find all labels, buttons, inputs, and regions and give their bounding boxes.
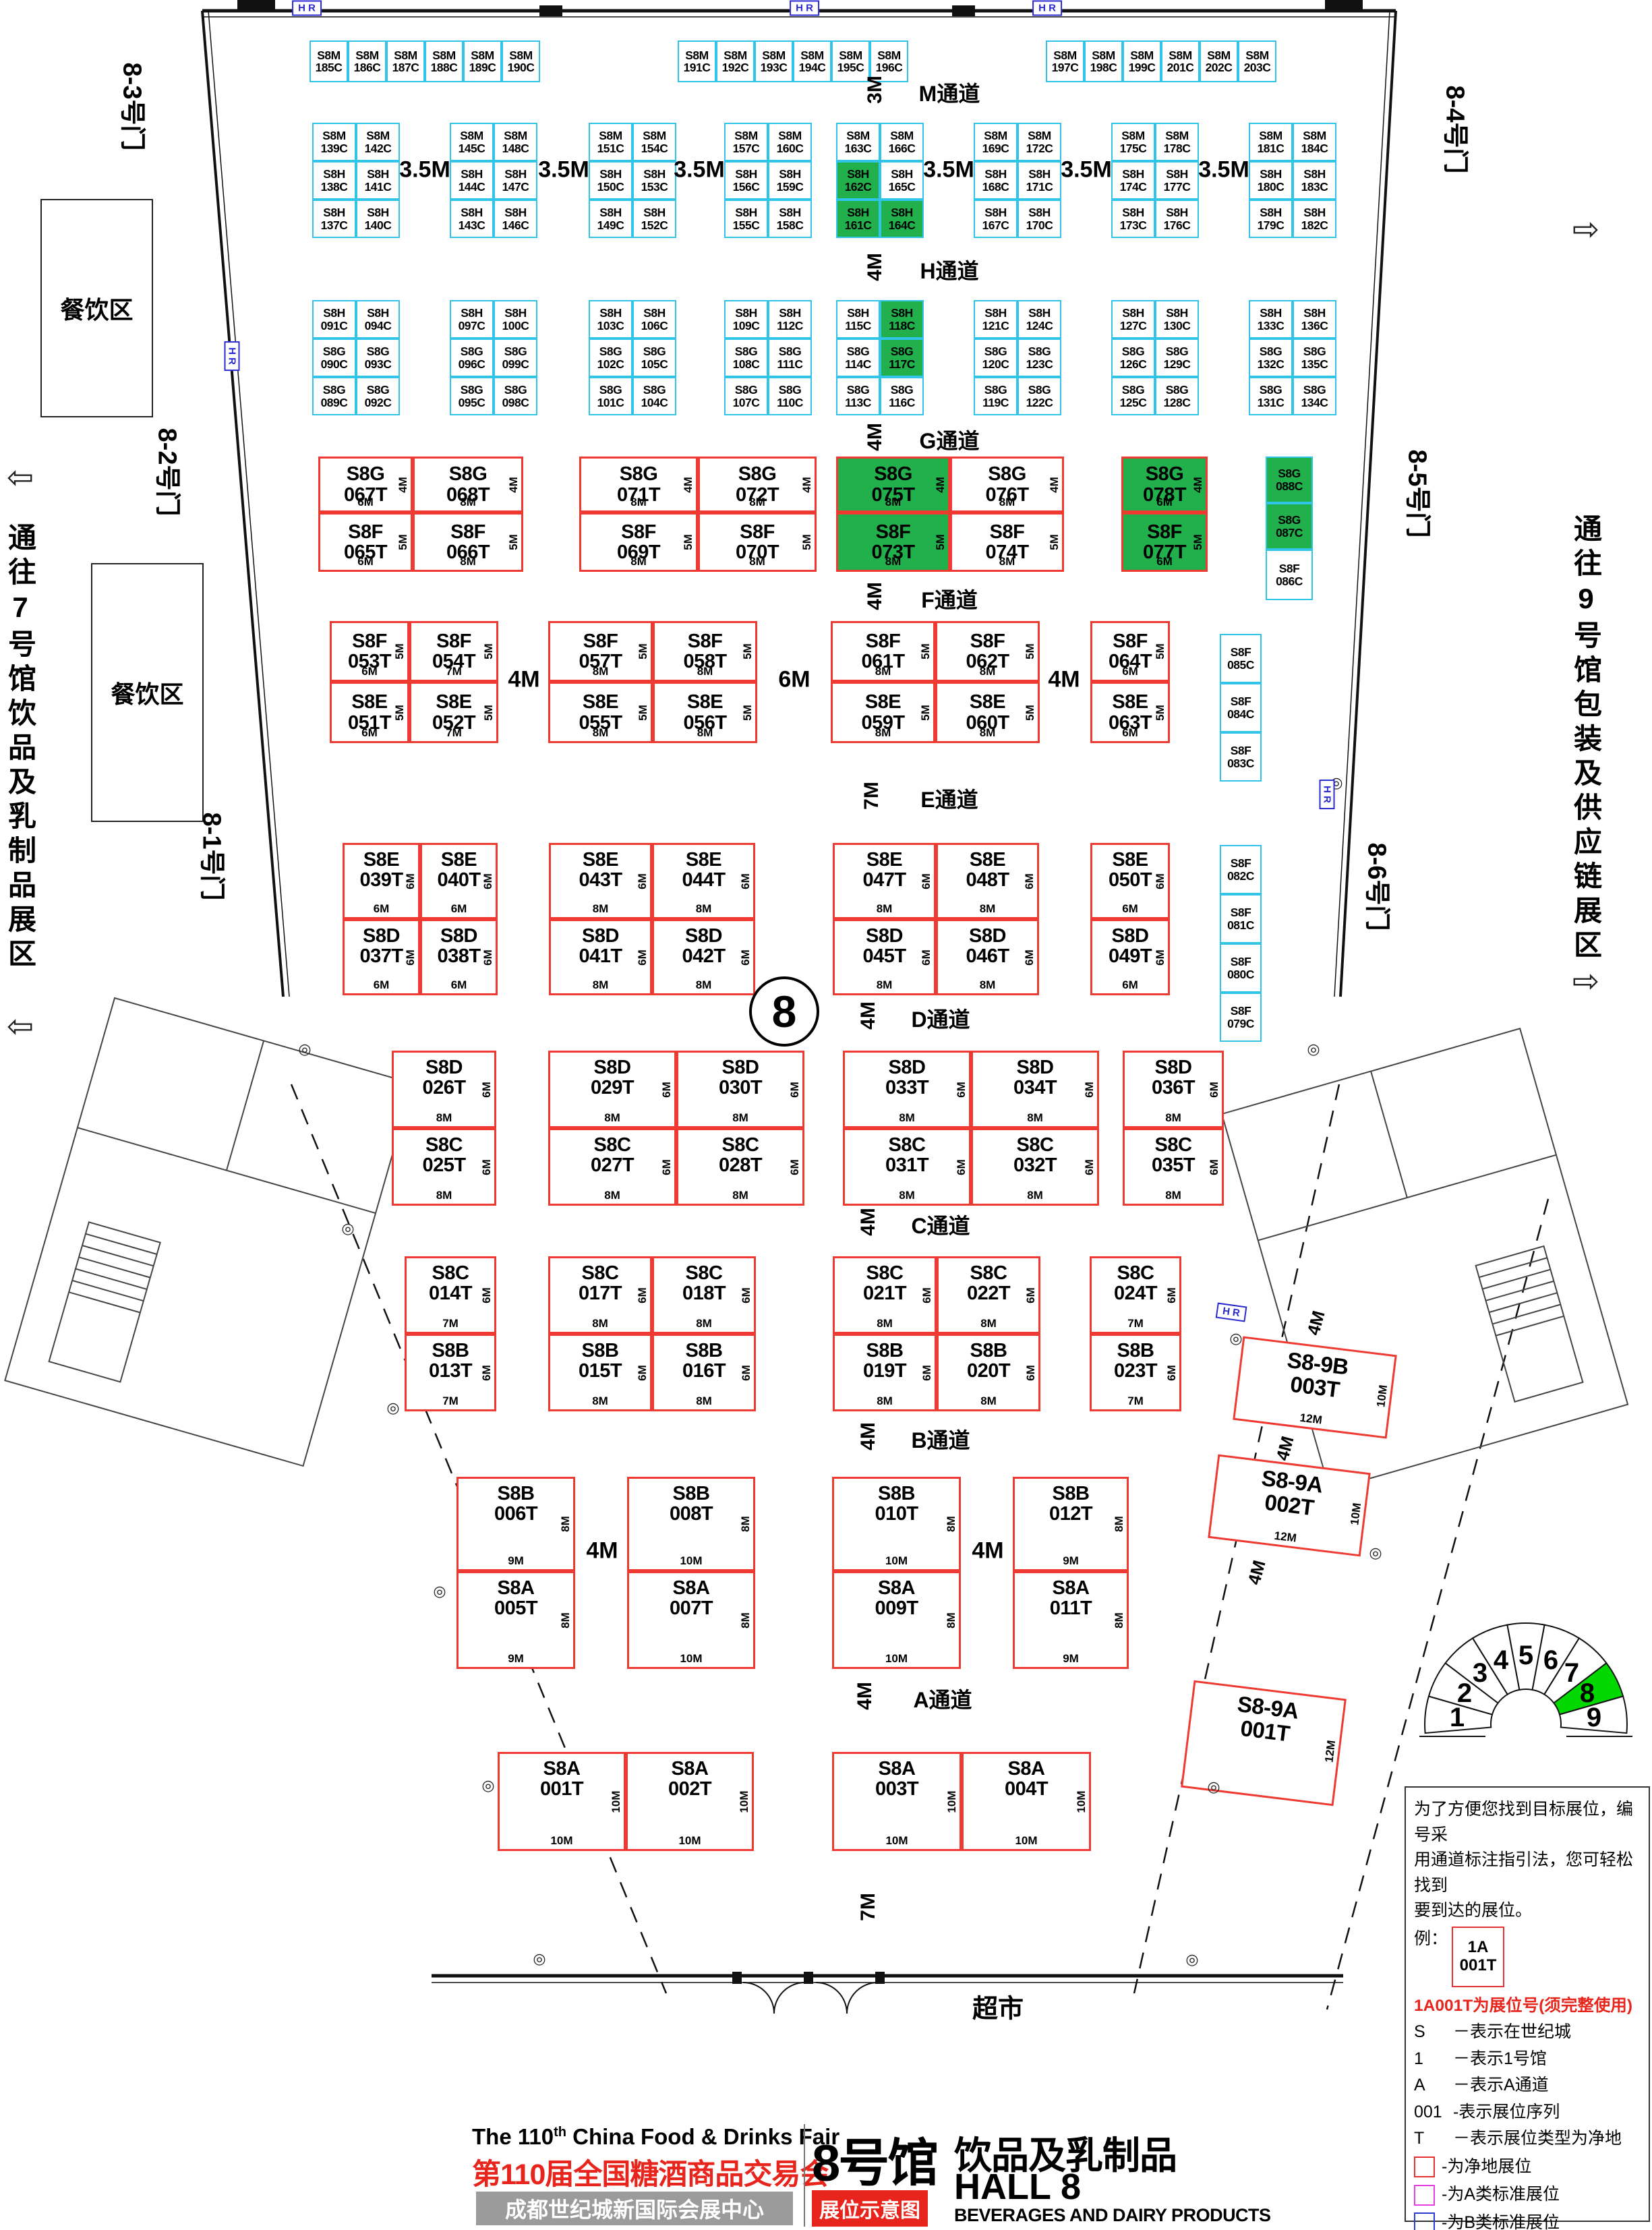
booth-S8F-062T: S8F062T8M5M — [935, 621, 1040, 682]
booth-S8-9A-001T: S8-9A001T12M — [1181, 1680, 1347, 1807]
label-4M: 4M — [857, 1001, 880, 1030]
booth-S8G-134C: S8G134C — [1293, 377, 1336, 415]
booth-S8H-149C: S8H149C — [589, 200, 632, 238]
booth-S8G-119C: S8G119C — [974, 377, 1017, 415]
booth-S8G-101C: S8G101C — [589, 377, 632, 415]
label-4M: 4M — [864, 423, 887, 451]
floor-plan-page: 餐饮区 餐饮区 S8M185CS8M186CS8M187CS8M188CS8M1… — [0, 0, 1652, 2230]
booth-S8M-191C: S8M191C — [678, 40, 716, 82]
swatch-icon — [1414, 2156, 1435, 2177]
label-7M: 7M — [857, 1893, 880, 1921]
booth-S8B-012T: S8B012T9M8M — [1013, 1477, 1129, 1571]
booth-S8F-065T: S8F065T6M5M — [318, 512, 413, 572]
booth-S8H-182C: S8H182C — [1293, 200, 1336, 238]
booth-S8G-078T: S8G078T6M4M — [1121, 457, 1208, 512]
booth-S8G-067T: S8G067T6M4M — [318, 457, 413, 512]
minimap-hall-9: 9 — [1587, 1703, 1601, 1732]
booth-S8E-051T: S8E051T6M5M — [330, 682, 409, 743]
label-M通道: M通道 — [919, 77, 980, 108]
booth-S8F-085C: S8F085C — [1220, 634, 1262, 683]
column-icon: ◎ — [386, 1399, 399, 1417]
booth-S8G-117C: S8G117C — [880, 339, 924, 377]
minimap-hall-6: 6 — [1543, 1645, 1558, 1675]
booth-S8M-186C: S8M186C — [348, 40, 386, 82]
column-icon: ◎ — [1307, 1040, 1320, 1058]
label-C通道: C通道 — [911, 1209, 970, 1240]
label-通往7号馆饮品及乳制品展区: 通往7号馆饮品及乳制品展区 — [0, 523, 41, 973]
label-H通道: H通道 — [920, 254, 978, 285]
booth-S8E-056T: S8E056T8M5M — [653, 682, 757, 743]
booth-S8M-151C: S8M151C — [589, 123, 632, 161]
fire-hydrant-icon: H R — [292, 1, 322, 16]
booth-S8G-131C: S8G131C — [1249, 377, 1293, 415]
label-⇦: ⇦ — [7, 1007, 34, 1045]
booth-S8C-014T: S8C014T7M6M — [405, 1256, 496, 1334]
column-icon: ◎ — [341, 1220, 354, 1237]
booth-S8M-142C: S8M142C — [356, 123, 400, 161]
booth-S8G-096C: S8G096C — [450, 339, 494, 377]
booth-S8F-082C: S8F082C — [1220, 845, 1262, 894]
column-icon: ◎ — [1207, 1778, 1220, 1796]
booth-S8G-102C: S8G102C — [589, 339, 632, 377]
booth-S8F-070T: S8F070T8M5M — [698, 512, 817, 572]
label-4M: 4M — [854, 1682, 877, 1710]
booth-S8B-013T: S8B013T7M6M — [405, 1334, 496, 1411]
booth-S8H-112C: S8H112C — [768, 300, 812, 339]
booth-S8M-185C: S8M185C — [309, 40, 348, 82]
legend-example-label: 例： — [1414, 1927, 1448, 1952]
booth-S8H-171C: S8H171C — [1017, 161, 1061, 200]
booth-S8D-034T: S8D034T8M6M — [971, 1051, 1099, 1128]
label-E通道: E通道 — [920, 783, 978, 814]
booth-S8M-189C: S8M189C — [463, 40, 502, 82]
booth-S8H-177C: S8H177C — [1155, 161, 1199, 200]
booth-S8G-088C: S8G088C — [1266, 457, 1313, 503]
swatch-icon — [1414, 2212, 1435, 2230]
booth-S8E-039T: S8E039T6M6M — [343, 843, 420, 919]
booth-S8G-126C: S8G126C — [1111, 339, 1155, 377]
booth-S8H-091C: S8H091C — [312, 300, 356, 339]
column-icon: ◎ — [481, 1777, 494, 1794]
booth-S8M-175C: S8M175C — [1111, 123, 1155, 161]
column-icon: ◎ — [298, 1040, 311, 1058]
booth-S8G-135C: S8G135C — [1293, 339, 1336, 377]
label-3.5M: 3.5M — [399, 157, 450, 183]
minimap-hall-4: 4 — [1494, 1645, 1509, 1675]
booth-S8H-156C: S8H156C — [724, 161, 768, 200]
booth-S8G-071T: S8G071T8M4M — [579, 457, 698, 512]
legend-swatch-row: -为B类标准展位 — [1414, 2210, 1643, 2230]
booth-S8F-058T: S8F058T8M5M — [653, 621, 757, 682]
booth-S8G-089C: S8G089C — [312, 377, 356, 415]
booth-S8M-160C: S8M160C — [768, 123, 812, 161]
booth-S8E-047T: S8E047T8M6M — [833, 843, 936, 919]
label-8-5号门: 8-5号门 — [1402, 450, 1439, 538]
booth-S8H-103C: S8H103C — [589, 300, 632, 339]
booth-S8H-161C: S8H161C — [836, 200, 880, 238]
booth-S8G-105C: S8G105C — [632, 339, 676, 377]
booth-S8M-154C: S8M154C — [632, 123, 676, 161]
label-6M: 6M — [778, 667, 810, 693]
booth-S8H-179C: S8H179C — [1249, 200, 1293, 238]
booth-S8M-188C: S8M188C — [425, 40, 463, 82]
legend-swatches: -为净地展位-为A类标准展位-为B类标准展位-为C类标准展位-为D类标准展位 — [1414, 2154, 1643, 2230]
booth-S8C-032T: S8C032T8M6M — [971, 1128, 1099, 1206]
category-en: BEVERAGES AND DAIRY PRODUCTS — [954, 2205, 1271, 2226]
booth-S8C-017T: S8C017T8M6M — [548, 1256, 652, 1334]
booth-S8G-093C: S8G093C — [356, 339, 400, 377]
booth-S8M-193C: S8M193C — [755, 40, 793, 82]
booth-S8H-152C: S8H152C — [632, 200, 676, 238]
label-通往9号馆包装及供应链展区: 通往9号馆包装及供应链展区 — [1566, 514, 1607, 964]
booth-S8H-159C: S8H159C — [768, 161, 812, 200]
label-G通道: G通道 — [920, 424, 980, 455]
booth-S8B-020T: S8B020T8M6M — [937, 1334, 1040, 1411]
booth-S8G-125C: S8G125C — [1111, 377, 1155, 415]
booth-S8D-037T: S8D037T6M6M — [343, 919, 420, 995]
booth-S8A-007T: S8A007T10M8M — [627, 1571, 755, 1669]
booth-S8H-127C: S8H127C — [1111, 300, 1155, 339]
dining-area-label: 餐饮区 — [60, 291, 133, 326]
booth-S8H-183C: S8H183C — [1293, 161, 1336, 200]
booth-S8M-178C: S8M178C — [1155, 123, 1199, 161]
map-type-label: 展位示意图 — [812, 2190, 928, 2227]
booth-S8H-100C: S8H100C — [494, 300, 537, 339]
booth-S8A-004T: S8A004T10M10M — [962, 1752, 1091, 1851]
booth-S8A-005T: S8A005T9M8M — [456, 1571, 575, 1669]
fire-hydrant-icon: H R — [790, 1, 819, 16]
booth-S8D-045T: S8D045T8M6M — [833, 919, 936, 995]
booth-S8F-084C: S8F084C — [1220, 683, 1262, 732]
booth-S8D-030T: S8D030T8M6M — [676, 1051, 804, 1128]
booth-S8G-123C: S8G123C — [1017, 339, 1061, 377]
booth-S8B-015T: S8B015T8M6M — [548, 1334, 652, 1411]
booth-S8G-099C: S8G099C — [494, 339, 537, 377]
booth-S8D-046T: S8D046T8M6M — [936, 919, 1039, 995]
fire-hydrant-icon: H R — [225, 341, 240, 371]
booth-S8H-165C: S8H165C — [880, 161, 924, 200]
booth-S8F-057T: S8F057T8M5M — [548, 621, 653, 682]
swatch-icon — [1414, 2185, 1435, 2206]
fire-hydrant-icon: H R — [1320, 780, 1335, 809]
booth-S8H-164C: S8H164C — [880, 200, 924, 238]
booth-S8H-180C: S8H180C — [1249, 161, 1293, 200]
dining-area-label: 餐饮区 — [111, 675, 183, 710]
booth-S8M-148C: S8M148C — [494, 123, 537, 161]
label-3.5M: 3.5M — [674, 157, 725, 183]
booth-S8H-176C: S8H176C — [1155, 200, 1199, 238]
label-超市: 超市 — [972, 1988, 1024, 2025]
venue-name: 成都世纪城新国际会展中心 — [476, 2192, 793, 2225]
booth-S8G-068T: S8G068T8M4M — [413, 457, 523, 512]
booth-S8D-026T: S8D026T8M6M — [392, 1051, 496, 1128]
booth-S8H-106C: S8H106C — [632, 300, 676, 339]
booth-S8G-072T: S8G072T8M4M — [698, 457, 817, 512]
legend-example-booth: 1A 001T — [1452, 1927, 1504, 1987]
booth-S8D-033T: S8D033T8M6M — [843, 1051, 971, 1128]
halls-minimap: 1 2 3 4 5 6 7 8 9 — [1406, 1613, 1652, 1768]
booth-S8H-121C: S8H121C — [974, 300, 1017, 339]
label-3.5M: 3.5M — [1198, 157, 1249, 183]
booth-S8M-199C: S8M199C — [1123, 40, 1161, 82]
booth-S8E-043T: S8E043T8M6M — [549, 843, 652, 919]
booth-S8M-197C: S8M197C — [1046, 40, 1084, 82]
booth-S8M-169C: S8M169C — [974, 123, 1017, 161]
label-8-6号门: 8-6号门 — [1361, 843, 1398, 931]
booth-S8H-153C: S8H153C — [632, 161, 676, 200]
booth-S8E-055T: S8E055T8M5M — [548, 682, 653, 743]
booth-S8H-170C: S8H170C — [1017, 200, 1061, 238]
label-4M: 4M — [508, 667, 539, 693]
booth-S8G-095C: S8G095C — [450, 377, 494, 415]
label-3.5M: 3.5M — [1061, 157, 1112, 183]
booth-S8H-167C: S8H167C — [974, 200, 1017, 238]
booth-S8H-140C: S8H140C — [356, 200, 400, 238]
label-F通道: F通道 — [921, 583, 978, 614]
booth-S8H-155C: S8H155C — [724, 200, 768, 238]
booth-S8F-083C: S8F083C — [1220, 732, 1262, 782]
legend-intro-line: 为了方便您找到目标展位，编号采 — [1414, 1797, 1643, 1848]
label-4M: 4M — [864, 582, 887, 610]
swatch-label: -为净地展位 — [1442, 2154, 1531, 2180]
booth-S8C-028T: S8C028T8M6M — [676, 1128, 804, 1206]
booth-S8F-074T: S8F074T8M5M — [950, 512, 1064, 572]
booth-S8M-139C: S8M139C — [312, 123, 356, 161]
title-divider — [804, 2124, 805, 2227]
booth-S8B-023T: S8B023T7M6M — [1090, 1334, 1181, 1411]
booth-S8H-173C: S8H173C — [1111, 200, 1155, 238]
booth-S8H-158C: S8H158C — [768, 200, 812, 238]
minimap-hall-5: 5 — [1518, 1641, 1533, 1670]
legend-swatch-row: -为净地展位 — [1414, 2154, 1643, 2180]
booth-S8A-002T: S8A002T10M10M — [626, 1752, 754, 1851]
booth-S8H-136C: S8H136C — [1293, 300, 1336, 339]
booth-S8M-166C: S8M166C — [880, 123, 924, 161]
booth-S8F-066T: S8F066T8M5M — [413, 512, 523, 572]
booth-S8E-059T: S8E059T8M5M — [831, 682, 935, 743]
booth-S8F-064T: S8F064T6M5M — [1090, 621, 1170, 682]
booth-S8H-168C: S8H168C — [974, 161, 1017, 200]
minimap-hall-2: 2 — [1457, 1678, 1472, 1708]
booth-S8F-080C: S8F080C — [1220, 943, 1262, 993]
booth-S8A-001T: S8A001T10M10M — [498, 1752, 626, 1851]
booth-S8G-113C: S8G113C — [836, 377, 880, 415]
booth-S8B-008T: S8B008T10M8M — [627, 1477, 755, 1571]
booth-S8H-174C: S8H174C — [1111, 161, 1155, 200]
booth-S8F-073T: S8F073T8M5M — [836, 512, 950, 572]
booth-S8H-162C: S8H162C — [836, 161, 880, 200]
label-⇨: ⇨ — [1572, 210, 1599, 248]
column-icon: ◎ — [433, 1583, 446, 1600]
booth-S8H-109C: S8H109C — [724, 300, 768, 339]
booth-S8B-006T: S8B006T9M8M — [456, 1477, 575, 1571]
booth-S8H-150C: S8H150C — [589, 161, 632, 200]
booth-S8M-181C: S8M181C — [1249, 123, 1293, 161]
booth-S8H-124C: S8H124C — [1017, 300, 1061, 339]
booth-S8H-137C: S8H137C — [312, 200, 356, 238]
booth-S8D-041T: S8D041T8M6M — [549, 919, 652, 995]
column-icon: ◎ — [1369, 1544, 1382, 1562]
booth-S8H-144C: S8H144C — [450, 161, 494, 200]
booth-S8M-145C: S8M145C — [450, 123, 494, 161]
booth-S8C-022T: S8C022T8M6M — [937, 1256, 1040, 1334]
label-4M: 4M — [972, 1538, 1003, 1564]
booth-S8D-049T: S8D049T6M6M — [1090, 919, 1170, 995]
booth-S8H-141C: S8H141C — [356, 161, 400, 200]
booth-S8G-076T: S8G076T8M4M — [950, 457, 1064, 512]
booth-S8C-027T: S8C027T8M6M — [548, 1128, 676, 1206]
swatch-label: -为A类标准展位 — [1442, 2182, 1560, 2208]
booth-S8E-044T: S8E044T8M6M — [652, 843, 755, 919]
booth-S8A-011T: S8A011T9M8M — [1013, 1571, 1129, 1669]
booth-S8G-110C: S8G110C — [768, 377, 812, 415]
fair-title-cn: 第110届全国糖酒商品交易会 — [472, 2151, 796, 2193]
label-D通道: D通道 — [911, 1003, 970, 1034]
booth-S8F-054T: S8F054T7M5M — [409, 621, 498, 682]
booth-S8H-147C: S8H147C — [494, 161, 537, 200]
booth-S8M-163C: S8M163C — [836, 123, 880, 161]
legend-intro-line: 用通道标注指引法，您可轻松找到 — [1414, 1848, 1643, 1898]
column-icon: ◎ — [1229, 1330, 1242, 1347]
booth-S8H-097C: S8H097C — [450, 300, 494, 339]
column-icon: ◎ — [1185, 1951, 1198, 1968]
booth-S8C-025T: S8C025T8M6M — [392, 1128, 496, 1206]
booth-S8E-052T: S8E052T7M5M — [409, 682, 498, 743]
label-3M: 3M — [864, 76, 887, 104]
booth-S8M-192C: S8M192C — [716, 40, 755, 82]
legend-example-note: 1A001T为展位号(须完整使用) — [1414, 1994, 1643, 2019]
booth-S8G-120C: S8G120C — [974, 339, 1017, 377]
booth-S8H-133C: S8H133C — [1249, 300, 1293, 339]
label-⇦: ⇦ — [7, 459, 34, 496]
booth-S8M-203C: S8M203C — [1238, 40, 1276, 82]
booth-S8G-132C: S8G132C — [1249, 339, 1293, 377]
booth-S8E-060T: S8E060T8M5M — [935, 682, 1040, 743]
booth-S8E-040T: S8E040T6M6M — [420, 843, 498, 919]
swatch-label: -为B类标准展位 — [1442, 2210, 1560, 2230]
booth-S8H-115C: S8H115C — [836, 300, 880, 339]
label-8-4号门: 8-4号门 — [1440, 86, 1477, 174]
label-8-2号门: 8-2号门 — [152, 428, 189, 517]
legend-box: 为了方便您找到目标展位，编号采 用通道标注指引法，您可轻松找到 要到达的展位。 … — [1405, 1786, 1650, 2222]
booth-S8M-198C: S8M198C — [1084, 40, 1123, 82]
booth-S8M-187C: S8M187C — [386, 40, 425, 82]
dining-area-2: 餐饮区 — [91, 563, 204, 822]
booth-S8D-036T: S8D036T8M6M — [1123, 1051, 1224, 1128]
label-⇨: ⇨ — [1572, 962, 1599, 1000]
label-4M: 4M — [857, 1422, 880, 1450]
booth-S8M-201C: S8M201C — [1161, 40, 1200, 82]
booth-S8C-024T: S8C024T7M6M — [1090, 1256, 1181, 1334]
fire-hydrant-icon: H R — [1032, 1, 1062, 16]
booth-S8G-075T: S8G075T8M4M — [836, 457, 950, 512]
booth-S8M-184C: S8M184C — [1293, 123, 1336, 161]
booth-S8C-018T: S8C018T8M6M — [652, 1256, 756, 1334]
booth-S8M-157C: S8M157C — [724, 123, 768, 161]
hall-name-en: HALL 8 — [954, 2166, 1081, 2208]
fair-title-en: The 110th China Food & Drinks Fair — [472, 2124, 796, 2150]
booth-S8G-108C: S8G108C — [724, 339, 768, 377]
booth-S8B-010T: S8B010T10M8M — [832, 1477, 961, 1571]
booth-S8F-061T: S8F061T8M5M — [831, 621, 935, 682]
dining-area-1: 餐饮区 — [40, 199, 153, 417]
booth-S8C-021T: S8C021T8M6M — [833, 1256, 937, 1334]
booth-S8M-194C: S8M194C — [793, 40, 831, 82]
booth-S8F-069T: S8F069T8M5M — [579, 512, 698, 572]
booth-S8M-172C: S8M172C — [1017, 123, 1061, 161]
booth-S8G-122C: S8G122C — [1017, 377, 1061, 415]
booth-S8H-094C: S8H094C — [356, 300, 400, 339]
label-4M: 4M — [586, 1538, 618, 1564]
label-8-1号门: 8-1号门 — [196, 813, 233, 901]
booth-S8D-029T: S8D029T8M6M — [548, 1051, 676, 1128]
hall-number-badge: 8 — [749, 976, 819, 1047]
booth-S8G-098C: S8G098C — [494, 377, 537, 415]
booth-S8G-129C: S8G129C — [1155, 339, 1199, 377]
booth-S8C-035T: S8C035T8M6M — [1123, 1128, 1224, 1206]
minimap-hall-3: 3 — [1473, 1658, 1487, 1688]
legend-swatch-row: -为A类标准展位 — [1414, 2182, 1643, 2208]
booth-S8G-090C: S8G090C — [312, 339, 356, 377]
booth-S8H-138C: S8H138C — [312, 161, 356, 200]
booth-S8A-003T: S8A003T10M10M — [832, 1752, 962, 1851]
label-B通道: B通道 — [911, 1424, 970, 1455]
booth-S8F-086C: S8F086C — [1266, 550, 1313, 600]
column-icon: ◎ — [533, 1950, 545, 1968]
booth-S8G-116C: S8G116C — [880, 377, 924, 415]
booth-S8F-077T: S8F077T6M5M — [1121, 512, 1208, 572]
booth-S8D-038T: S8D038T6M6M — [420, 919, 498, 995]
booth-S8G-092C: S8G092C — [356, 377, 400, 415]
booth-S8G-128C: S8G128C — [1155, 377, 1199, 415]
label-4M: 4M — [1048, 667, 1080, 693]
booth-S8D-042T: S8D042T8M6M — [652, 919, 755, 995]
hall-name-cn: 8号馆 — [812, 2121, 937, 2196]
booth-S8G-114C: S8G114C — [836, 339, 880, 377]
booth-S8B-016T: S8B016T8M6M — [652, 1334, 756, 1411]
booth-S8G-111C: S8G111C — [768, 339, 812, 377]
booth-S8C-031T: S8C031T8M6M — [843, 1128, 971, 1206]
booth-S8E-050T: S8E050T6M6M — [1090, 843, 1170, 919]
booth-S8E-048T: S8E048T8M6M — [936, 843, 1039, 919]
label-4M: 4M — [864, 253, 887, 281]
booth-S8H-146C: S8H146C — [494, 200, 537, 238]
booth-S8G-104C: S8G104C — [632, 377, 676, 415]
label-3.5M: 3.5M — [538, 157, 589, 183]
label-7M: 7M — [860, 782, 883, 810]
booth-S8H-143C: S8H143C — [450, 200, 494, 238]
booth-S8M-190C: S8M190C — [502, 40, 540, 82]
booth-S8M-202C: S8M202C — [1200, 40, 1238, 82]
label-3.5M: 3.5M — [923, 157, 974, 183]
label-A通道: A通道 — [913, 1683, 972, 1714]
booth-S8H-118C: S8H118C — [880, 300, 924, 339]
legend-intro-line: 要到达的展位。 — [1414, 1898, 1643, 1924]
booth-S8E-063T: S8E063T6M5M — [1090, 682, 1170, 743]
booth-S8B-019T: S8B019T8M6M — [833, 1334, 937, 1411]
label-4M: 4M — [857, 1208, 880, 1236]
minimap-hall-7: 7 — [1564, 1658, 1579, 1688]
booth-S8G-087C: S8G087C — [1266, 503, 1313, 550]
booth-S8F-081C: S8F081C — [1220, 894, 1262, 943]
booth-S8H-130C: S8H130C — [1155, 300, 1199, 339]
label-8-3号门: 8-3号门 — [117, 63, 154, 151]
booth-S8G-107C: S8G107C — [724, 377, 768, 415]
booth-S8A-009T: S8A009T10M8M — [832, 1571, 961, 1669]
booth-S8F-079C: S8F079C — [1220, 993, 1262, 1042]
booth-S8F-053T: S8F053T6M5M — [330, 621, 409, 682]
